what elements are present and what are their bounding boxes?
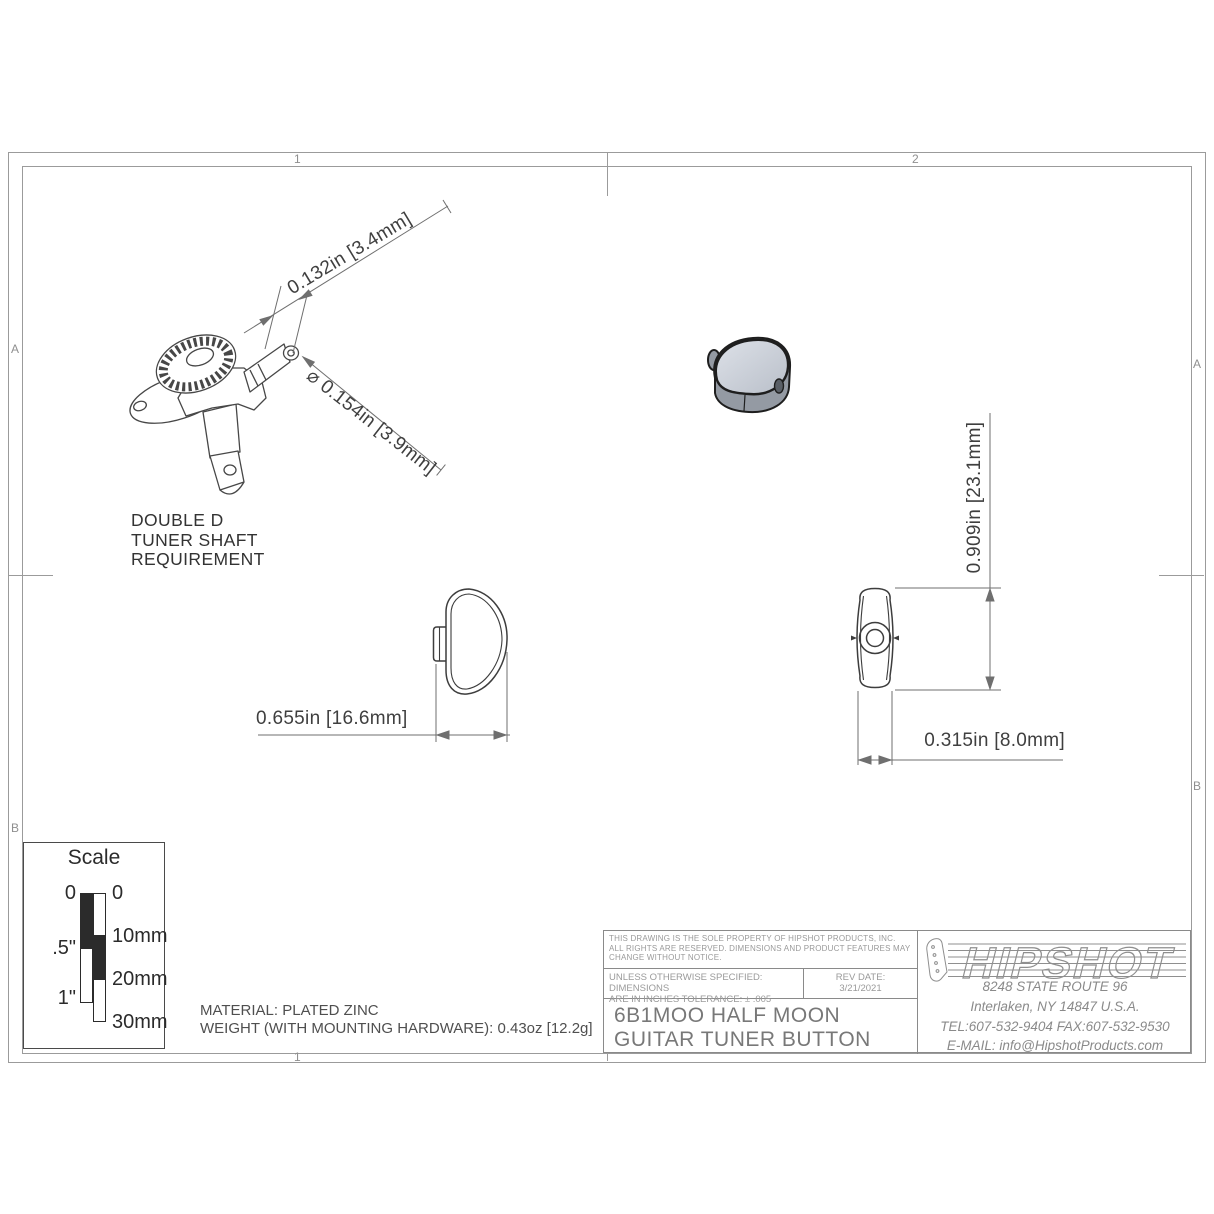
address-email: E-MAIL: info@HipshotProducts.com: [918, 1038, 1192, 1054]
part-title: 6B1MOO HALF MOON GUITAR TUNER BUTTON: [604, 999, 918, 1054]
scale-ruler-mm-white-1: [93, 893, 106, 936]
center-tick-right: [1159, 575, 1204, 576]
scale-inch-zero: 0: [46, 883, 76, 903]
hipshot-logo: HIPSHOT: [918, 933, 1192, 985]
address-city: Interlaken, NY 14847 U.S.A.: [918, 999, 1192, 1015]
rev-date-label: REV DATE:: [809, 972, 912, 983]
weight-line: WEIGHT (WITH MOUNTING HARDWARE): 0.43oz …: [200, 1020, 593, 1038]
material-note: MATERIAL: PLATED ZINC WEIGHT (WITH MOUNT…: [200, 1002, 593, 1038]
zone-label-left-b: B: [11, 822, 19, 834]
zone-label-right-b: B: [1193, 780, 1201, 792]
shaft-requirement-line: REQUIREMENT: [131, 550, 265, 570]
tolerance-line: UNLESS OTHERWISE SPECIFIED: DIMENSIONS: [609, 972, 798, 994]
tolerance-note: UNLESS OTHERWISE SPECIFIED: DIMENSIONS A…: [604, 969, 804, 999]
shaft-requirement-line: TUNER SHAFT: [131, 531, 265, 551]
zone-label-right-a: A: [1193, 358, 1201, 370]
title-block: THIS DRAWING IS THE SOLE PROPERTY OF HIP…: [603, 930, 1191, 1053]
zone-label-top-2: 2: [912, 153, 919, 165]
rev-date-cell: REV DATE: 3/21/2021: [804, 969, 918, 999]
drawing-sheet: 1 2 1 A B A B: [0, 0, 1214, 1214]
scale-inch-one: 1": [36, 988, 76, 1008]
scale-ruler-mm-black: [93, 936, 106, 979]
dim-button-height-text: 0.909in [23.1mm]: [964, 405, 986, 590]
scale-title: Scale: [24, 848, 164, 868]
zone-label-top-1: 1: [294, 153, 301, 165]
center-tick-left: [8, 575, 53, 576]
dim-button-length-text: 0.655in [16.6mm]: [256, 708, 456, 730]
scale-ruler-inch-black: [80, 893, 93, 948]
brand-cell: HIPSHOT 8248 STATE ROUTE 96 Interlaken, …: [918, 931, 1192, 1054]
scale-inch-half: .5": [36, 938, 76, 958]
part-title-line: GUITAR TUNER BUTTON: [614, 1028, 917, 1052]
dim-button-thickness-text: 0.315in [8.0mm]: [900, 730, 1065, 752]
shaft-requirement-note: DOUBLE D TUNER SHAFT REQUIREMENT: [131, 511, 265, 570]
address-street: 8248 STATE ROUTE 96: [918, 979, 1192, 995]
frame-inner-border: [22, 166, 1192, 1054]
scale-mm-zero: 0: [112, 883, 123, 903]
shaft-requirement-line: DOUBLE D: [131, 511, 265, 531]
address-phone: TEL:607-532-9404 FAX:607-532-9530: [918, 1019, 1192, 1035]
material-line: MATERIAL: PLATED ZINC: [200, 1002, 593, 1020]
legal-notice: THIS DRAWING IS THE SOLE PROPERTY OF HIP…: [604, 931, 918, 969]
scale-ruler-mm-white-2: [93, 979, 106, 1022]
scale-mm-twenty: 20mm: [112, 969, 168, 989]
scale-ruler-inch-white: [80, 948, 93, 1003]
center-tick-top: [607, 153, 608, 196]
scale-mm-ten: 10mm: [112, 926, 168, 946]
zone-label-left-a: A: [11, 343, 19, 355]
zone-label-bottom-1: 1: [294, 1051, 301, 1063]
part-title-line: 6B1MOO HALF MOON: [614, 1004, 917, 1028]
scale-mm-thirty: 30mm: [112, 1012, 168, 1032]
rev-date-value: 3/21/2021: [809, 983, 912, 994]
